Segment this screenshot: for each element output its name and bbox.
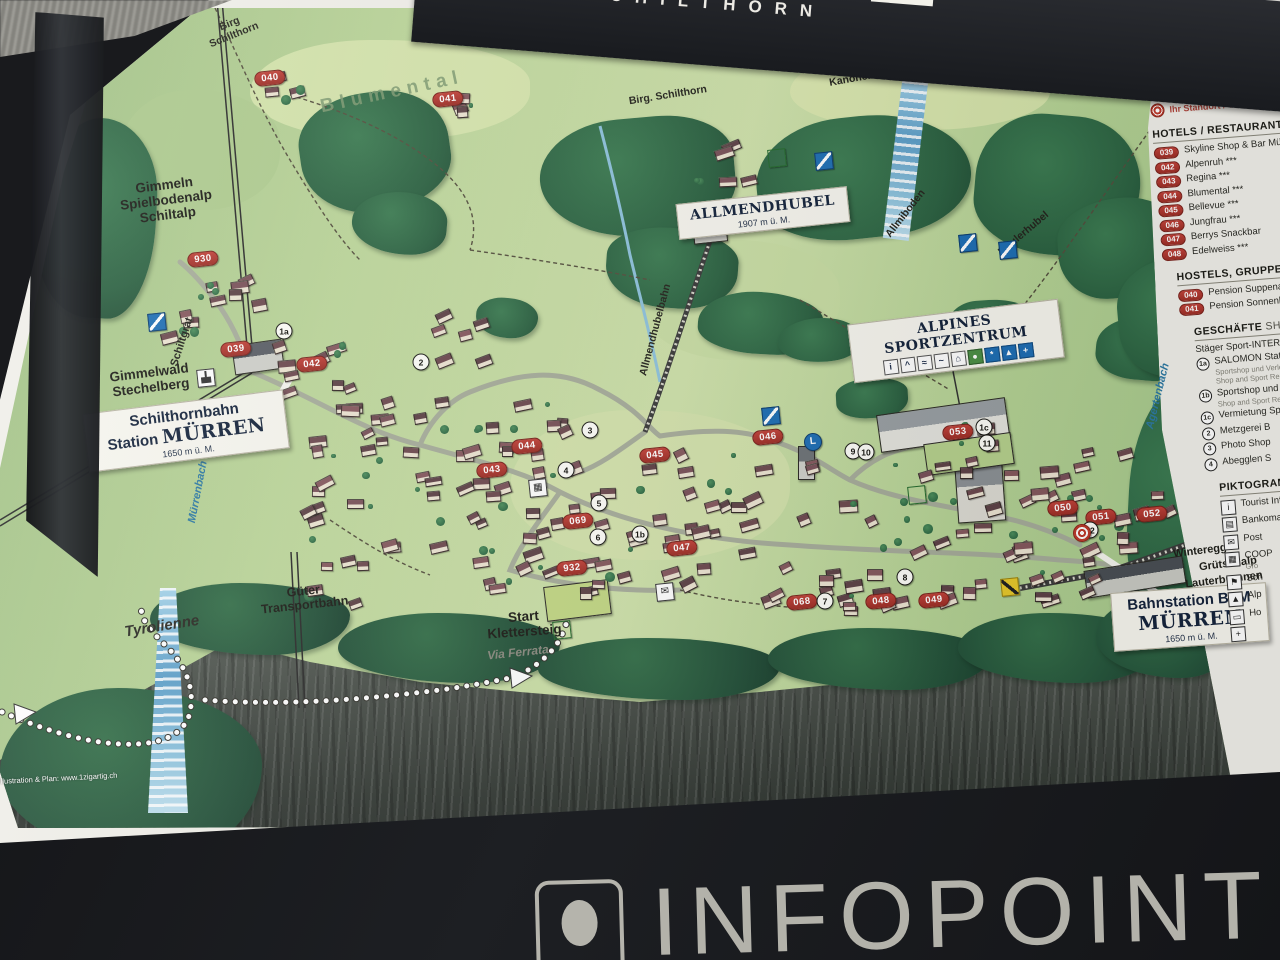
map-circle-marker: 6 — [590, 529, 607, 546]
map-icon-lift — [147, 312, 167, 332]
board-frame — [26, 12, 104, 577]
legend-picto-icon: + — [1230, 626, 1246, 642]
map-icon-lift — [761, 406, 781, 426]
map-circle-marker: 8 — [897, 569, 914, 586]
map-icon-cable — [196, 368, 216, 388]
sport-picto-icon: ● — [967, 348, 984, 365]
brand-logo — [871, 0, 934, 6]
infopoint-title: INFOPOINT — [650, 851, 1274, 960]
infopoint-icon — [534, 879, 625, 960]
legend-picto-icon: i — [1220, 499, 1236, 515]
map-icon-post: ✉ — [655, 582, 675, 602]
map-circle-marker: 5 — [591, 495, 608, 512]
map-icon-lift — [958, 233, 978, 253]
map-icon-lift — [814, 151, 834, 171]
legend-picto-icon: ⚑ — [1226, 574, 1242, 590]
infoboard-photo: BirgSchilthornBlumentalBirg. SchilthornK… — [0, 0, 1280, 960]
sport-picto-icon: ▲ — [1000, 344, 1017, 361]
map-icon-green — [767, 148, 787, 168]
you-are-here-icon — [1150, 103, 1165, 118]
map-circle-marker: 7 — [817, 593, 834, 610]
map-icon-green — [552, 620, 572, 640]
legend-picto-icon: ▦ — [1224, 552, 1240, 568]
map-label: StartKlettersteig — [486, 606, 562, 641]
map-icon-lift — [998, 240, 1018, 260]
legend-picto-icon: ✉ — [1223, 534, 1239, 550]
legend-picto-icon: ▲ — [1228, 591, 1244, 607]
map-circle-marker: 4 — [558, 462, 575, 479]
map-circle-marker: 1c — [976, 419, 993, 436]
legend-picto-icon: ▭ — [1229, 609, 1245, 625]
map-circle-marker: 10 — [858, 444, 875, 461]
legend-picto-icon: ▤ — [1222, 517, 1238, 533]
map-circle-marker: 3 — [582, 422, 599, 439]
map-circle-marker: 2 — [413, 354, 430, 371]
sport-picto-icon: + — [1017, 342, 1034, 359]
map-panel: BirgSchilthornBlumentalBirg. SchilthornK… — [0, 0, 1280, 860]
sport-picto-icon: ≈ — [916, 355, 933, 372]
sport-picto-icon: * — [984, 346, 1001, 363]
brand-title: SCHILTHORN — [585, 0, 826, 23]
map-circle-marker: 1a — [276, 323, 293, 340]
sport-picto-icon: i — [882, 359, 899, 376]
map-icon-para — [1000, 577, 1020, 597]
sport-picto-icon: ^ — [899, 357, 916, 374]
sport-picto-icon: ~ — [933, 353, 950, 370]
map-circle-marker: 11 — [979, 435, 996, 452]
map-circle-marker: 1b — [632, 526, 649, 543]
map-icon-cart: ▦ — [528, 478, 548, 498]
sport-picto-icon: ⌂ — [950, 351, 967, 368]
map-icon-green — [907, 485, 927, 505]
